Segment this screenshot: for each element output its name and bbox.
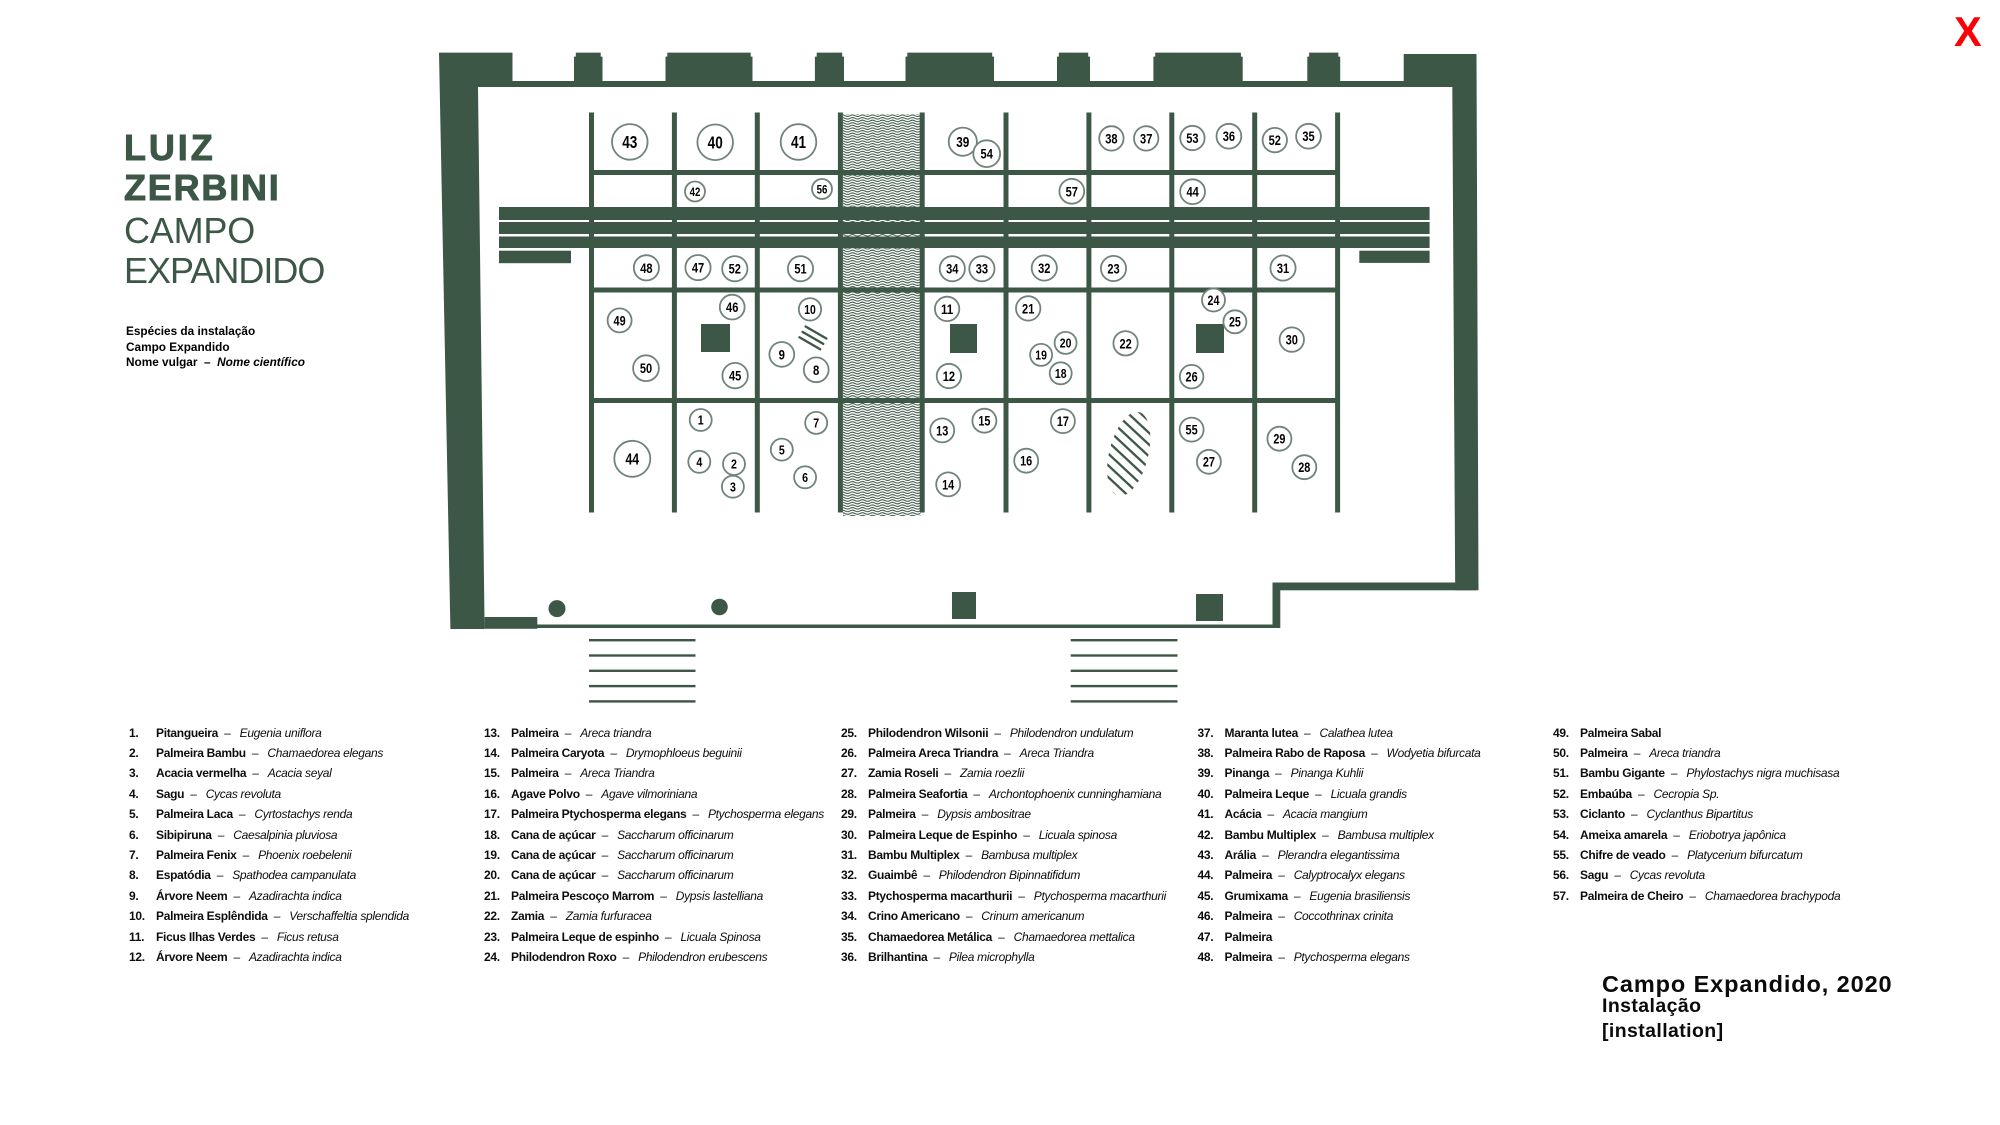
svg-text:20: 20 (1060, 336, 1072, 351)
svg-text:13: 13 (936, 423, 948, 438)
svg-text:4: 4 (696, 455, 702, 470)
svg-text:52: 52 (1269, 132, 1281, 148)
svg-text:23: 23 (1107, 261, 1119, 277)
svg-text:2: 2 (731, 457, 737, 472)
svg-text:50: 50 (640, 360, 652, 376)
svg-text:7: 7 (813, 416, 819, 431)
svg-text:25: 25 (1229, 315, 1241, 330)
svg-text:51: 51 (794, 261, 806, 277)
svg-text:31: 31 (1277, 260, 1289, 276)
svg-text:28: 28 (1298, 460, 1310, 475)
svg-text:17: 17 (1057, 414, 1069, 429)
svg-text:45: 45 (729, 368, 741, 384)
svg-text:38: 38 (1105, 130, 1117, 146)
svg-text:29: 29 (1273, 432, 1285, 447)
svg-text:22: 22 (1119, 335, 1131, 351)
svg-text:40: 40 (708, 132, 723, 152)
svg-text:56: 56 (817, 182, 828, 196)
svg-text:32: 32 (1038, 260, 1050, 276)
svg-text:57: 57 (1066, 183, 1078, 199)
svg-text:42: 42 (690, 185, 701, 199)
svg-text:11: 11 (941, 301, 953, 317)
svg-text:33: 33 (976, 261, 988, 277)
svg-text:15: 15 (978, 414, 990, 429)
svg-text:12: 12 (943, 368, 955, 384)
svg-text:27: 27 (1203, 455, 1215, 470)
svg-text:6: 6 (802, 470, 808, 485)
svg-text:34: 34 (946, 261, 958, 277)
svg-text:18: 18 (1055, 366, 1067, 381)
svg-text:39: 39 (956, 135, 969, 151)
svg-text:44: 44 (1186, 184, 1198, 200)
svg-text:47: 47 (692, 260, 704, 276)
svg-text:54: 54 (981, 146, 993, 162)
svg-text:41: 41 (791, 132, 806, 152)
svg-text:26: 26 (1186, 370, 1198, 385)
svg-text:14: 14 (942, 477, 954, 492)
svg-text:44: 44 (626, 451, 640, 468)
svg-text:5: 5 (779, 442, 785, 457)
svg-text:21: 21 (1022, 300, 1034, 316)
svg-text:46: 46 (726, 299, 738, 315)
svg-text:35: 35 (1302, 128, 1314, 144)
svg-text:43: 43 (622, 132, 637, 152)
svg-text:8: 8 (813, 362, 819, 378)
svg-text:49: 49 (614, 313, 626, 328)
svg-text:1: 1 (698, 413, 704, 428)
svg-text:30: 30 (1286, 332, 1298, 348)
svg-text:55: 55 (1186, 423, 1198, 438)
svg-text:37: 37 (1140, 130, 1152, 146)
svg-text:52: 52 (729, 261, 741, 277)
svg-text:10: 10 (804, 302, 816, 317)
svg-text:9: 9 (779, 346, 785, 362)
svg-text:53: 53 (1186, 130, 1198, 146)
svg-text:48: 48 (640, 260, 652, 276)
svg-text:16: 16 (1020, 454, 1032, 469)
svg-text:36: 36 (1223, 128, 1235, 144)
svg-text:3: 3 (730, 479, 736, 494)
svg-text:24: 24 (1208, 293, 1220, 308)
svg-text:19: 19 (1035, 348, 1047, 363)
